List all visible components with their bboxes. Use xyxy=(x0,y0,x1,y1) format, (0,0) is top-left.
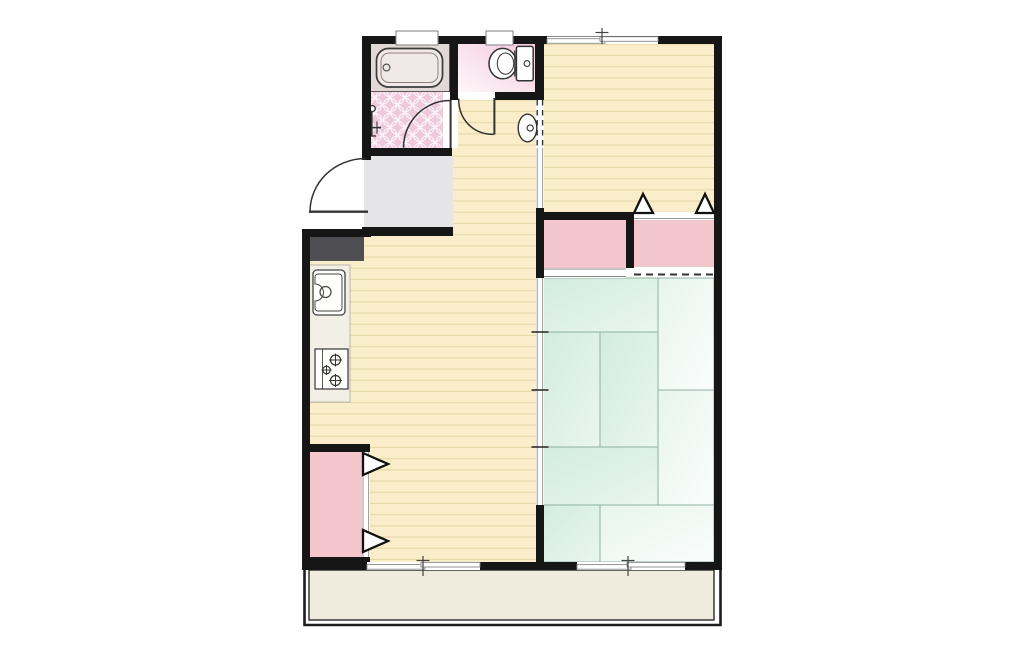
wall xyxy=(302,444,370,452)
tatami-mat xyxy=(600,332,658,447)
wall xyxy=(302,229,310,570)
wall xyxy=(480,562,578,570)
genkan-floor xyxy=(364,156,453,227)
tatami-mat xyxy=(543,278,658,332)
tatami-mat xyxy=(543,447,658,505)
wall xyxy=(535,36,544,100)
bathroom-window xyxy=(396,31,438,45)
tatami-room xyxy=(543,278,714,562)
toilet-window xyxy=(486,31,513,45)
kitchen-sink-icon xyxy=(313,270,345,315)
tatami-mat xyxy=(658,390,714,505)
wall xyxy=(626,220,634,268)
tatami-mat xyxy=(658,278,714,390)
bathtub xyxy=(377,49,443,88)
bedroom-closet-left xyxy=(544,220,626,268)
wall xyxy=(450,36,458,100)
tatami-mat xyxy=(600,505,714,562)
toilet-icon xyxy=(489,46,533,80)
bedroom-closet-right xyxy=(634,220,714,267)
bedroom-floor xyxy=(544,44,714,212)
gas-stove-icon xyxy=(315,349,348,389)
wall xyxy=(536,505,544,563)
wall xyxy=(536,212,634,220)
tatami-mat xyxy=(543,505,600,562)
balcony-floor xyxy=(309,570,714,620)
tatami-mat xyxy=(543,332,600,447)
wall xyxy=(495,92,535,100)
floorplan-canvas xyxy=(0,0,1024,658)
wall xyxy=(302,229,371,237)
balcony xyxy=(305,570,721,625)
entrance-door xyxy=(309,159,368,212)
kitchen xyxy=(308,265,350,402)
wall xyxy=(362,227,453,236)
bathroom xyxy=(366,43,458,148)
dk-closet xyxy=(310,452,362,557)
floorplan xyxy=(0,0,1024,658)
wall xyxy=(714,36,722,570)
hand-basin-icon xyxy=(518,114,537,142)
wall xyxy=(362,148,452,156)
wall xyxy=(362,36,371,160)
closet-dashed-opening xyxy=(634,267,714,276)
bedroom-sliding-door xyxy=(536,148,544,208)
toilet-room xyxy=(458,44,535,92)
bedroom-wall-dashed-opening xyxy=(536,100,544,148)
wall xyxy=(685,562,722,570)
entry-step xyxy=(308,236,364,261)
closet-sliding-door xyxy=(544,268,626,278)
washroom-floor xyxy=(371,92,443,148)
wall xyxy=(302,557,370,566)
